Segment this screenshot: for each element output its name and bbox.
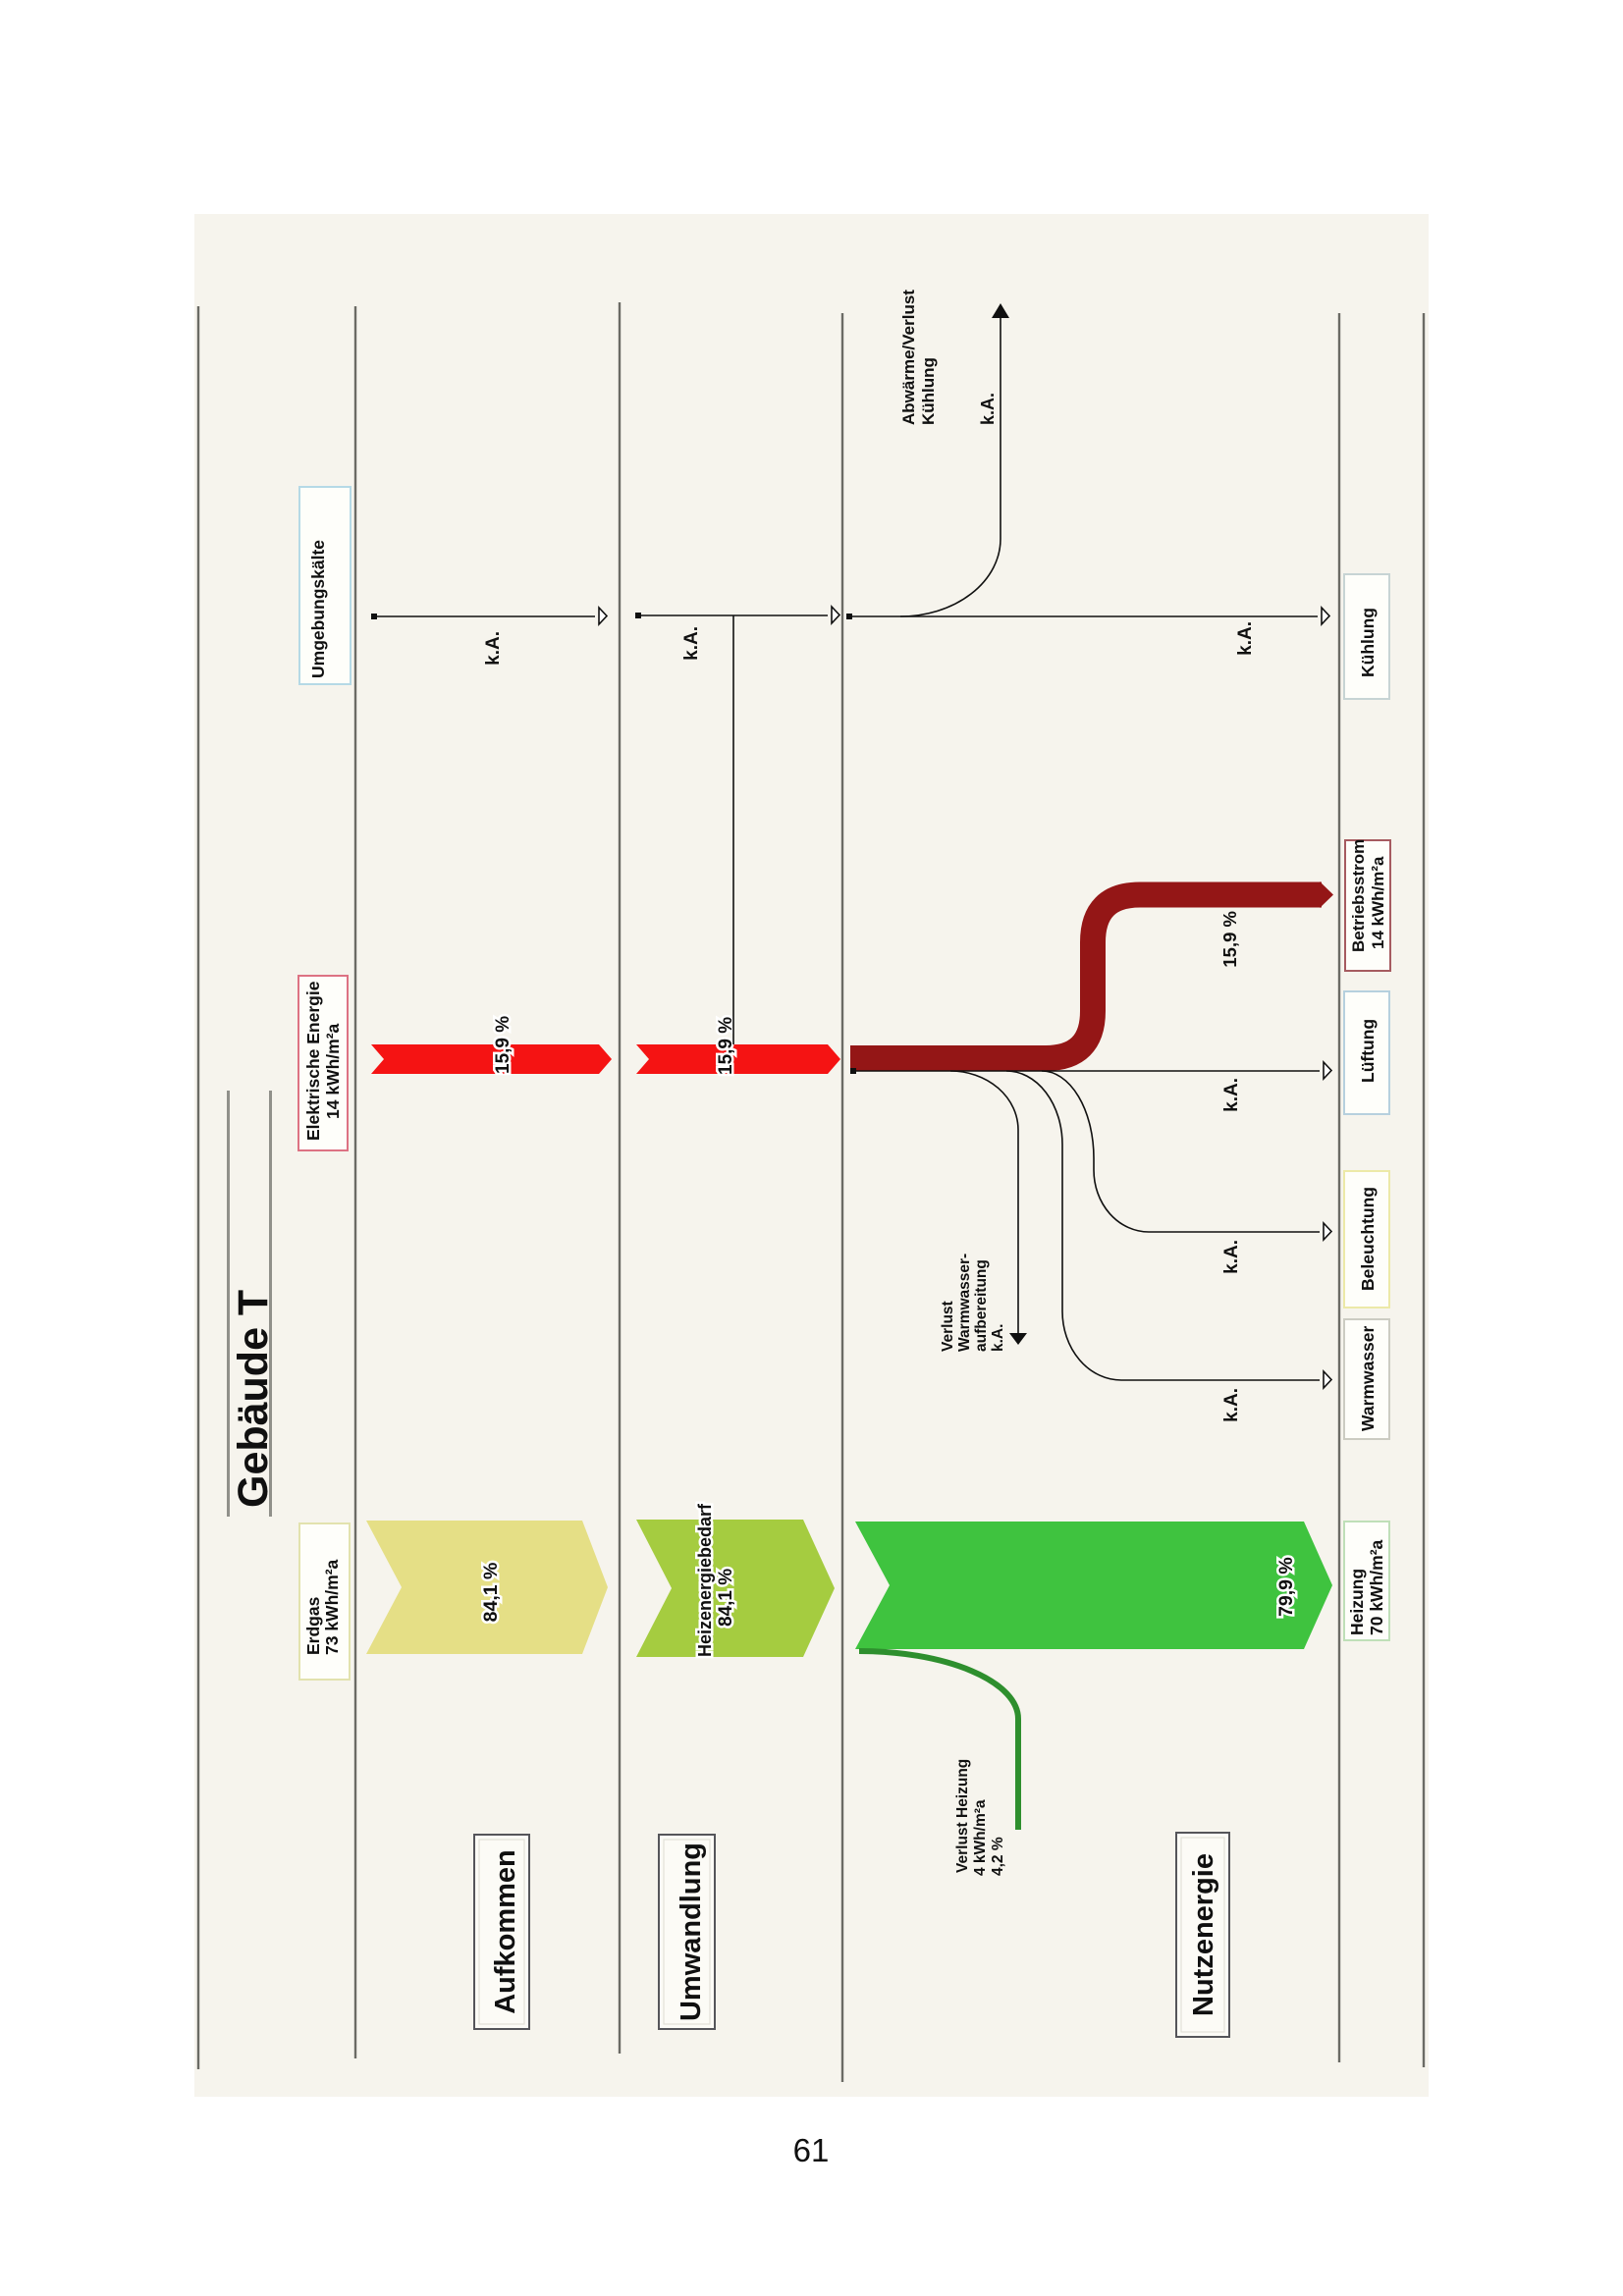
svg-text:Heizung: Heizung	[1347, 1569, 1367, 1635]
svg-text:Kühlung: Kühlung	[919, 357, 938, 425]
svg-text:Lüftung: Lüftung	[1358, 1019, 1378, 1083]
svg-text:14 kWh/m²a: 14 kWh/m²a	[323, 1023, 343, 1119]
svg-text:15,9 %: 15,9 %	[493, 1016, 514, 1074]
svg-text:Warmwasser-: Warmwasser-	[956, 1254, 973, 1352]
svg-text:k.A.: k.A.	[1221, 1388, 1242, 1422]
svg-text:Elektrische Energie: Elektrische Energie	[303, 981, 323, 1141]
svg-text:4 kWh/m²a: 4 kWh/m²a	[972, 1799, 989, 1876]
svg-text:k.A.: k.A.	[990, 1324, 1006, 1352]
svg-text:84,1 %: 84,1 %	[480, 1563, 502, 1623]
svg-text:14 kWh/m²a: 14 kWh/m²a	[1369, 856, 1387, 949]
svg-text:Verlust Heizung: Verlust Heizung	[954, 1759, 971, 1873]
svg-text:Betriebsstrom: Betriebsstrom	[1349, 839, 1368, 952]
svg-text:Beleuchtung: Beleuchtung	[1358, 1187, 1378, 1291]
svg-text:61: 61	[793, 2132, 830, 2168]
svg-text:84,1 %: 84,1 %	[716, 1569, 736, 1627]
svg-text:k.A.: k.A.	[681, 626, 702, 661]
svg-text:Umwandlung: Umwandlung	[676, 1842, 707, 2021]
svg-text:Heizenergiebedarf: Heizenergiebedarf	[695, 1503, 715, 1657]
svg-text:73 kWh/m²a: 73 kWh/m²a	[322, 1559, 342, 1655]
svg-text:70 kWh/m²a: 70 kWh/m²a	[1367, 1539, 1386, 1635]
svg-text:79,9 %: 79,9 %	[1275, 1557, 1297, 1617]
svg-text:Verlust: Verlust	[940, 1301, 956, 1352]
svg-text:Erdgas: Erdgas	[303, 1596, 323, 1655]
svg-text:k.A.: k.A.	[483, 631, 504, 666]
svg-text:4,2 %: 4,2 %	[990, 1837, 1006, 1876]
svg-text:Abwärme/Verlust: Abwärme/Verlust	[899, 290, 918, 425]
svg-text:Aufkommen: Aufkommen	[490, 1849, 521, 2014]
svg-text:k.A.: k.A.	[1221, 1240, 1242, 1274]
svg-text:Nutzenergie: Nutzenergie	[1188, 1853, 1219, 2016]
svg-text:Kühlung: Kühlung	[1358, 608, 1378, 677]
svg-text:k.A.: k.A.	[1235, 621, 1256, 656]
svg-text:Umgebungskälte: Umgebungskälte	[308, 540, 328, 678]
svg-text:k.A.: k.A.	[978, 393, 998, 425]
svg-text:aufbereitung: aufbereitung	[973, 1259, 990, 1352]
svg-text:15,9 %: 15,9 %	[1219, 911, 1240, 968]
svg-text:k.A.: k.A.	[1221, 1078, 1242, 1112]
svg-text:Warmwasser: Warmwasser	[1358, 1325, 1378, 1431]
